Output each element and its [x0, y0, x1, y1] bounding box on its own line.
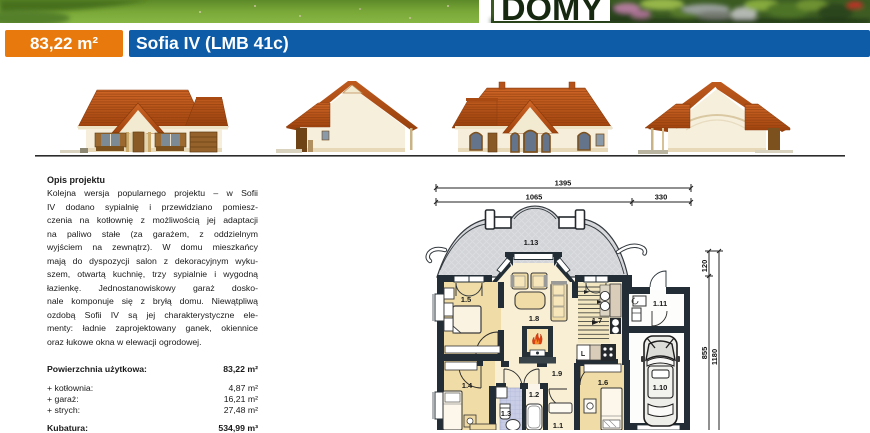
- svg-text:1.8: 1.8: [529, 314, 540, 323]
- svg-text:1.10: 1.10: [653, 383, 668, 392]
- svg-text:1.13: 1.13: [524, 238, 539, 247]
- svg-text:1.4: 1.4: [462, 381, 473, 390]
- svg-text:1.5: 1.5: [461, 295, 472, 304]
- svg-text:1.11: 1.11: [653, 299, 668, 308]
- svg-text:330: 330: [655, 193, 668, 202]
- svg-text:1.6: 1.6: [598, 378, 609, 387]
- svg-text:1065: 1065: [526, 193, 543, 202]
- svg-text:1.9: 1.9: [552, 369, 563, 378]
- svg-text:855: 855: [700, 347, 709, 360]
- svg-text:120: 120: [700, 260, 709, 273]
- svg-text:DOMY: DOMY: [501, 0, 603, 23]
- svg-text:1.1: 1.1: [553, 421, 564, 430]
- svg-text:1.2: 1.2: [529, 390, 540, 399]
- svg-text:L: L: [581, 351, 586, 358]
- svg-text:1395: 1395: [555, 179, 572, 188]
- svg-text:1.3: 1.3: [501, 409, 512, 418]
- svg-text:1.7: 1.7: [592, 316, 603, 325]
- svg-text:1180: 1180: [710, 349, 719, 365]
